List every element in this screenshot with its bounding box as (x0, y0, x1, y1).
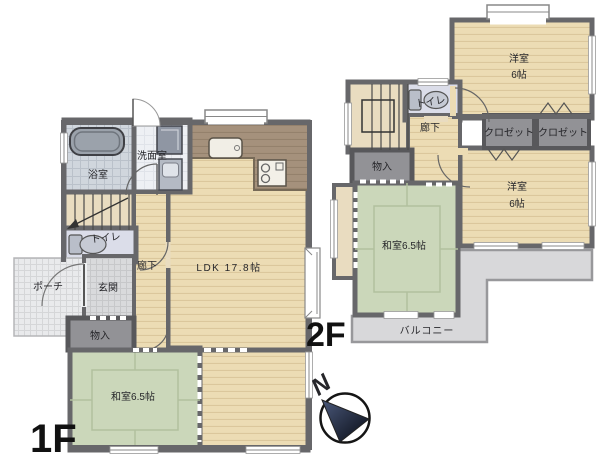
window-top-room-right (589, 36, 596, 94)
label-storage-1f: 物入 (90, 329, 110, 342)
back-door-arc (133, 99, 160, 126)
label-japanese-room-2f: 和室6.5帖 (382, 239, 426, 252)
window-washitsu-bottom (110, 447, 158, 454)
label-closet-right: クロゼット (538, 127, 588, 139)
label-washroom: 洗面室 (137, 149, 167, 162)
label-japanese-room-1f: 和室6.5帖 (111, 390, 155, 403)
label-western-top: 洋室 (509, 52, 529, 65)
label-western-top-size: 6帖 (511, 68, 527, 81)
toilet-door-gap-2f (424, 116, 448, 122)
bay-window-2f-top (487, 5, 549, 25)
room-western-bottom (460, 148, 592, 246)
label-ldk: LDK 17.8帖 (196, 261, 261, 274)
bay-window-ldk-right (305, 248, 320, 318)
label-western-bottom-size: 6帖 (509, 197, 525, 210)
window-ldk-bottom (246, 447, 300, 454)
kitchen-stove (258, 160, 286, 186)
kitchen-sink (209, 138, 242, 158)
floorplan-image: LDK 17.8帖 和室6.5帖 浴室 洗面室 トイレ 廊下 玄関 ポーチ 物入… (0, 0, 600, 468)
label-bath: 浴室 (88, 168, 108, 181)
bay-window-kitchen-top (205, 110, 267, 125)
label-closet-left: クロゼット (484, 127, 534, 139)
window-strip-left (331, 200, 338, 258)
label-porch: ポーチ (33, 281, 63, 293)
floor1-plan: LDK 17.8帖 和室6.5帖 浴室 洗面室 トイレ 廊下 玄関 ポーチ 物入… (14, 99, 320, 461)
floor2-plan: 洋室 6帖 洋室 6帖 クロゼット クロゼット 和室6.5帖 トイレ 廊下 物入… (306, 5, 596, 354)
window-toilet-top (418, 79, 448, 86)
label-hallway-2f: 廊下 (420, 121, 440, 134)
window-stairs-left (345, 103, 352, 145)
label-western-bottom: 洋室 (507, 180, 527, 193)
label-hallway-1f: 廊下 (137, 259, 157, 272)
floor1-label: 1F (30, 417, 77, 461)
staircase-2f (348, 82, 412, 152)
bottom-room-door-gap (438, 148, 468, 155)
floor2-label: 2F (306, 316, 346, 354)
room-western-top (452, 20, 592, 118)
label-entrance: 玄関 (98, 281, 118, 294)
top-room-door-gap (450, 86, 456, 116)
window-bottom-room-right (589, 162, 596, 226)
vanity-basin (163, 163, 179, 177)
window-bath-left (61, 133, 68, 163)
floorplan-svg: LDK 17.8帖 和室6.5帖 浴室 洗面室 トイレ 廊下 玄関 ポーチ 物入… (0, 0, 600, 468)
label-storage-2f: 物入 (372, 160, 392, 173)
compass: N (306, 369, 369, 443)
label-balcony: バルコニー (400, 325, 455, 337)
